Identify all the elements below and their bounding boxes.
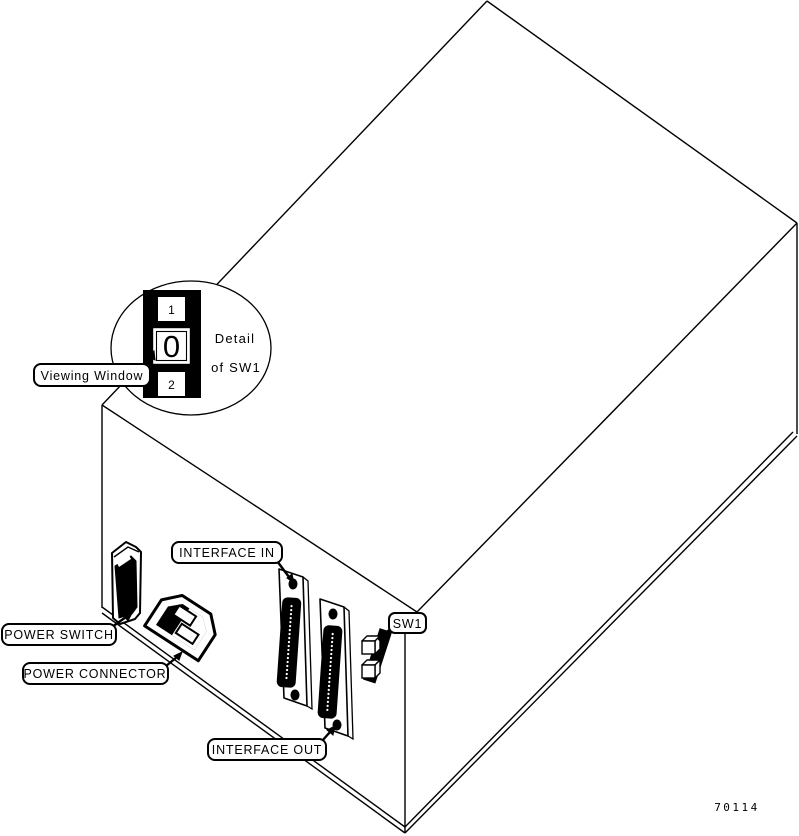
box-front-right-top-edge [417,223,797,612]
box-front-left-top-edge [102,405,417,612]
callout-sw1: SW1 [389,613,426,633]
callout-interface-in-text: INTERFACE IN [179,546,275,560]
detail-circle: 1 0 2 Detail of SW1 [111,281,271,415]
detail-caption-line2: of SW1 [211,360,261,375]
box-bottom-left-edge-inner [102,607,405,827]
box-bottom-right-edge-inner [405,432,793,827]
callout-power-switch: POWER SWITCH [2,624,116,645]
interface-out-connector [318,599,353,739]
technical-line-drawing: 1 0 2 Detail of SW1 Viewing Window INT [0,0,799,836]
callout-interface-out-text: INTERFACE OUT [212,743,322,757]
callout-sw1-text: SW1 [393,617,423,631]
sw1-switch [362,628,392,683]
callout-viewing-window: Viewing Window [34,364,150,386]
figure-number: 70114 [714,801,760,814]
detail-digit-2: 2 [168,378,175,392]
device-box [102,1,797,833]
power-connector [145,587,224,660]
callout-power-connector-text: POWER CONNECTOR [23,667,166,681]
detail-caption-line1: Detail [215,331,255,346]
callout-labels: Viewing Window INTERFACE IN POWER SWITCH… [2,364,426,760]
detail-digit-1: 1 [168,303,175,317]
callout-interface-out: INTERFACE OUT [208,739,326,760]
detail-digit-0: 0 [163,329,180,364]
callout-power-switch-text: POWER SWITCH [4,628,114,642]
interface-in-screw-bottom [291,690,300,701]
power-switch [112,542,141,624]
sw1-button-2-front [362,665,375,678]
box-bottom-left-edge-outer [102,613,405,833]
callout-interface-in: INTERFACE IN [172,542,282,563]
interface-in-connector [277,569,312,709]
sw1-button-1-front [362,641,375,654]
interface-out-screw-top [329,609,338,620]
callout-power-connector: POWER CONNECTOR [23,663,168,684]
box-bottom-right-edge-outer [405,436,797,833]
callout-viewing-window-text: Viewing Window [41,369,144,383]
box-top-right-edge [487,1,797,223]
